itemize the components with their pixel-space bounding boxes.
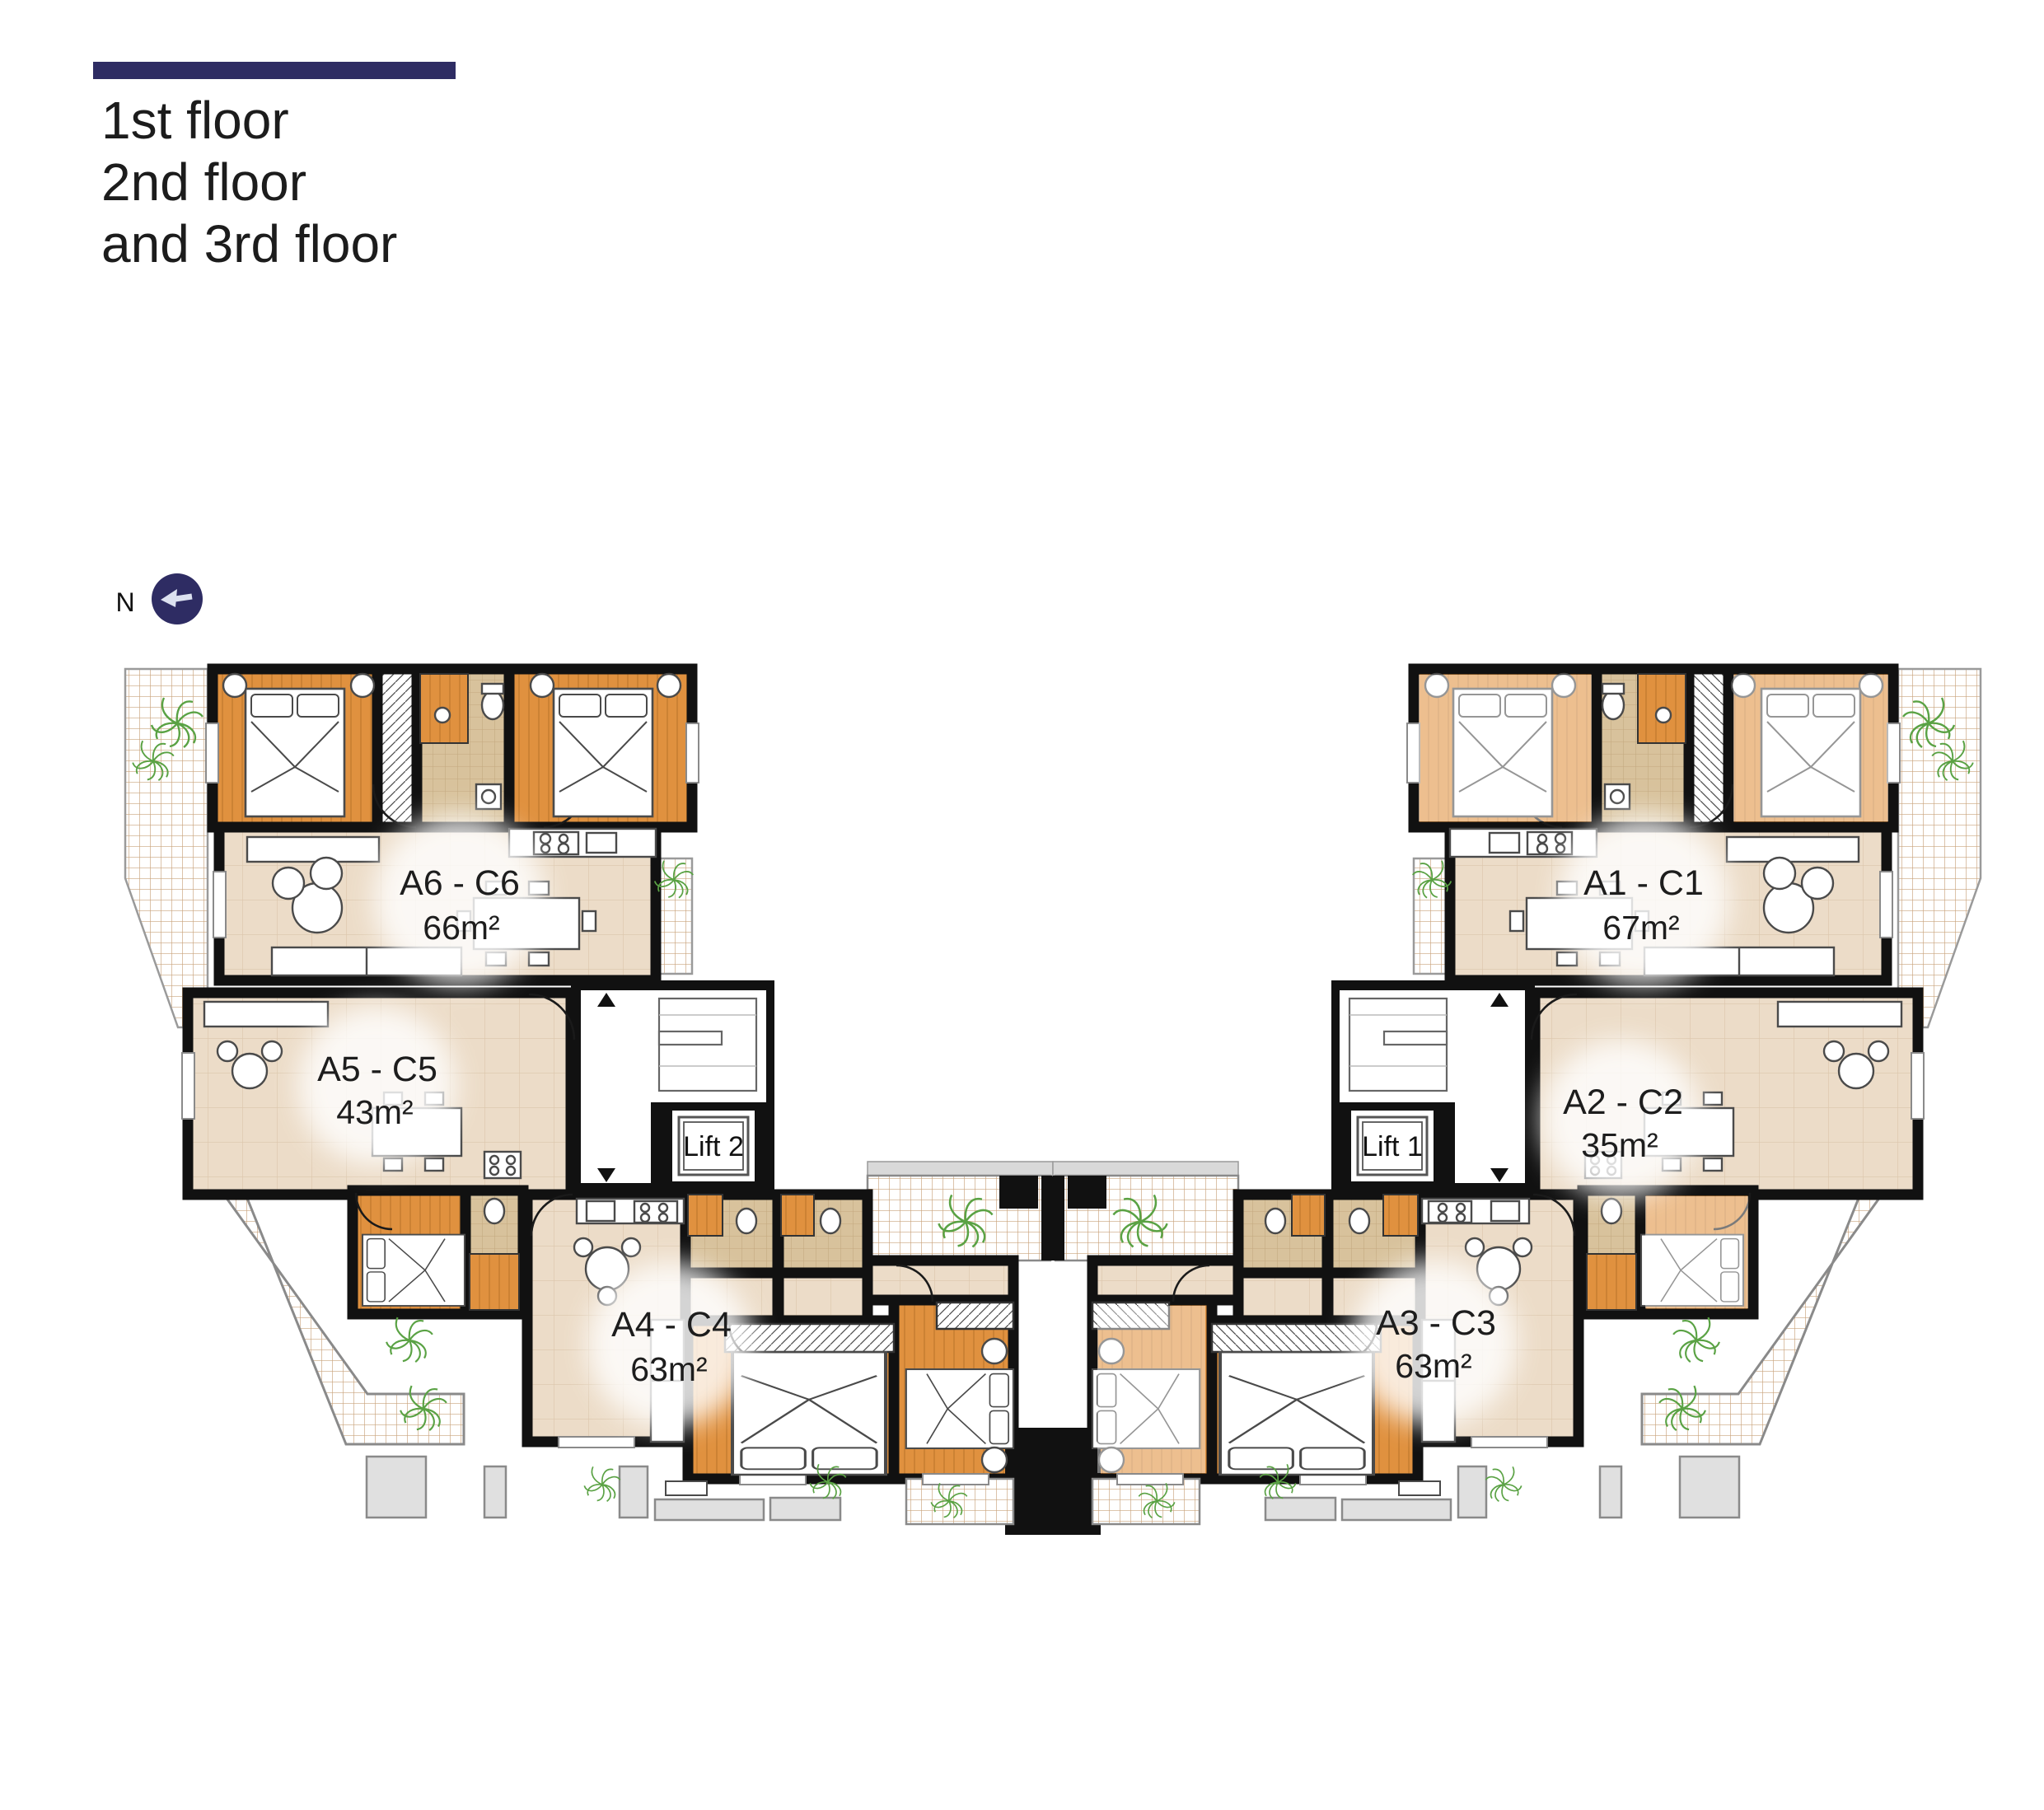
unit-code: A1 - C1 — [1583, 863, 1704, 903]
unit-area: 43m² — [336, 1093, 413, 1131]
title-block: 1st floor 2nd floor and 3rd floor — [93, 62, 456, 274]
left-wing — [125, 669, 1053, 1535]
unit-code: A5 - C5 — [317, 1050, 437, 1089]
lift-2-label: Lift 2 — [683, 1131, 744, 1162]
unit-code: A2 - C2 — [1563, 1083, 1683, 1122]
title-line-1: 1st floor — [101, 91, 289, 150]
lift-1-label: Lift 1 — [1362, 1131, 1423, 1162]
floor-plan-page: 1st floor 2nd floor and 3rd floor N — [0, 0, 2044, 1810]
unit-code: A4 - C4 — [611, 1305, 732, 1345]
unit-code: A6 - C6 — [400, 863, 520, 903]
unit-area: 63m² — [630, 1350, 707, 1388]
north-label: N — [115, 587, 134, 617]
unit-code: A3 - C3 — [1376, 1303, 1496, 1343]
title-accent-bar — [93, 62, 456, 79]
unit-area: 35m² — [1581, 1126, 1658, 1164]
title-line-2: 2nd floor — [101, 152, 306, 212]
unit-area: 63m² — [1395, 1347, 1471, 1385]
unit-area: 66m² — [423, 909, 499, 947]
unit-area: 67m² — [1602, 909, 1679, 947]
title-line-3: and 3rd floor — [101, 214, 397, 274]
floor-plan-canvas: 1st floor 2nd floor and 3rd floor N — [0, 0, 2044, 1810]
north-compass: N — [115, 573, 203, 624]
